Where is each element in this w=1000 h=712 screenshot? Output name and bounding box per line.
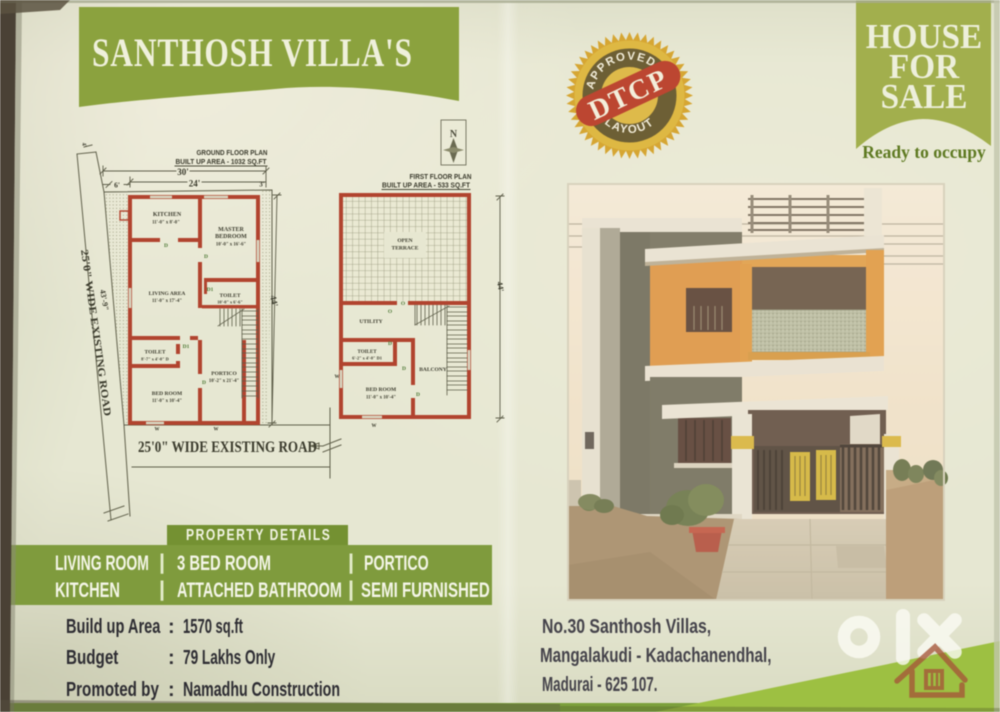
svg-text:UTILITY: UTILITY: [359, 319, 382, 325]
svg-text:FIRST FLOOR PLAN: FIRST FLOOR PLAN: [410, 174, 472, 181]
svg-text:25'0" WIDE EXISTING ROAD: 25'0" WIDE EXISTING ROAD: [78, 249, 112, 417]
svg-text:BED ROOM: BED ROOM: [152, 391, 183, 397]
svg-text:44': 44': [495, 281, 506, 293]
svg-text:D1: D1: [183, 344, 190, 350]
svg-text:W: W: [335, 375, 340, 380]
svg-text:GROUND FLOOR PLAN: GROUND FLOOR PLAN: [197, 148, 268, 157]
svg-text:BED ROOM: BED ROOM: [366, 387, 397, 393]
svg-text:TOILET: TOILET: [357, 350, 377, 355]
svg-text:TOILET: TOILET: [220, 293, 241, 299]
svg-text:6'-2" x 4'-0" D1: 6'-2" x 4'-0" D1: [352, 356, 382, 361]
svg-text:O: O: [401, 301, 406, 307]
svg-text:BALCONY: BALCONY: [419, 367, 447, 373]
svg-text:11'-0" x 10'-4": 11'-0" x 10'-4": [366, 396, 396, 401]
svg-text:BUILT UP AREA - 533 SQ.FT: BUILT UP AREA - 533 SQ.FT: [382, 183, 471, 190]
svg-text:MASTER: MASTER: [218, 227, 244, 233]
svg-text:10'-0" x 16'-6": 10'-0" x 16'-6": [216, 243, 247, 248]
svg-text:LIVING AREA: LIVING AREA: [149, 291, 186, 297]
svg-text:25'0" WIDE EXISTING ROAD: 25'0" WIDE EXISTING ROAD: [138, 439, 317, 456]
svg-text:11'-0" x 10'-4": 11'-0" x 10'-4": [152, 399, 182, 404]
svg-text:11'-0" x 8'-0": 11'-0" x 8'-0": [152, 221, 180, 226]
svg-text:KITCHEN: KITCHEN: [153, 212, 182, 218]
svg-text:43'-9": 43'-9": [98, 289, 111, 312]
svg-text:BEDROOM: BEDROOM: [215, 234, 247, 240]
svg-text:8'-7" x 4'-0" D: 8'-7" x 4'-0" D: [141, 357, 169, 362]
svg-text:D: D: [202, 380, 206, 386]
svg-text:D: D: [416, 392, 420, 398]
svg-text:D: D: [204, 254, 208, 260]
svg-text:24': 24': [189, 179, 201, 189]
svg-text:3': 3': [259, 181, 265, 189]
svg-text:D: D: [402, 366, 406, 372]
svg-text:6': 6': [114, 181, 120, 190]
svg-text:BUILT UP AREA - 1032 SQ.FT: BUILT UP AREA - 1032 SQ.FT: [176, 157, 267, 166]
svg-text:TOILET: TOILET: [145, 350, 166, 356]
svg-text:11'-0" x 17'-4": 11'-0" x 17'-4": [152, 299, 182, 304]
svg-text:10'-0" x 6'-6": 10'-0" x 6'-6": [217, 300, 243, 305]
svg-text:N: N: [450, 129, 458, 140]
svg-text:PORTICO: PORTICO: [211, 371, 237, 377]
svg-text:D1: D1: [207, 287, 214, 293]
svg-text:D: D: [164, 243, 168, 249]
svg-text:4': 4': [80, 142, 87, 148]
svg-text:W: W: [372, 424, 377, 429]
svg-text:OPEN: OPEN: [397, 238, 412, 244]
svg-text:D: D: [388, 341, 392, 347]
svg-text:W: W: [214, 428, 219, 433]
svg-text:TERRACE: TERRACE: [392, 246, 419, 252]
svg-text:O: O: [388, 309, 393, 315]
svg-text:W: W: [155, 428, 160, 433]
svg-text:30': 30': [177, 167, 189, 177]
svg-text:10'-2" x 21'-4": 10'-2" x 21'-4": [209, 379, 240, 384]
